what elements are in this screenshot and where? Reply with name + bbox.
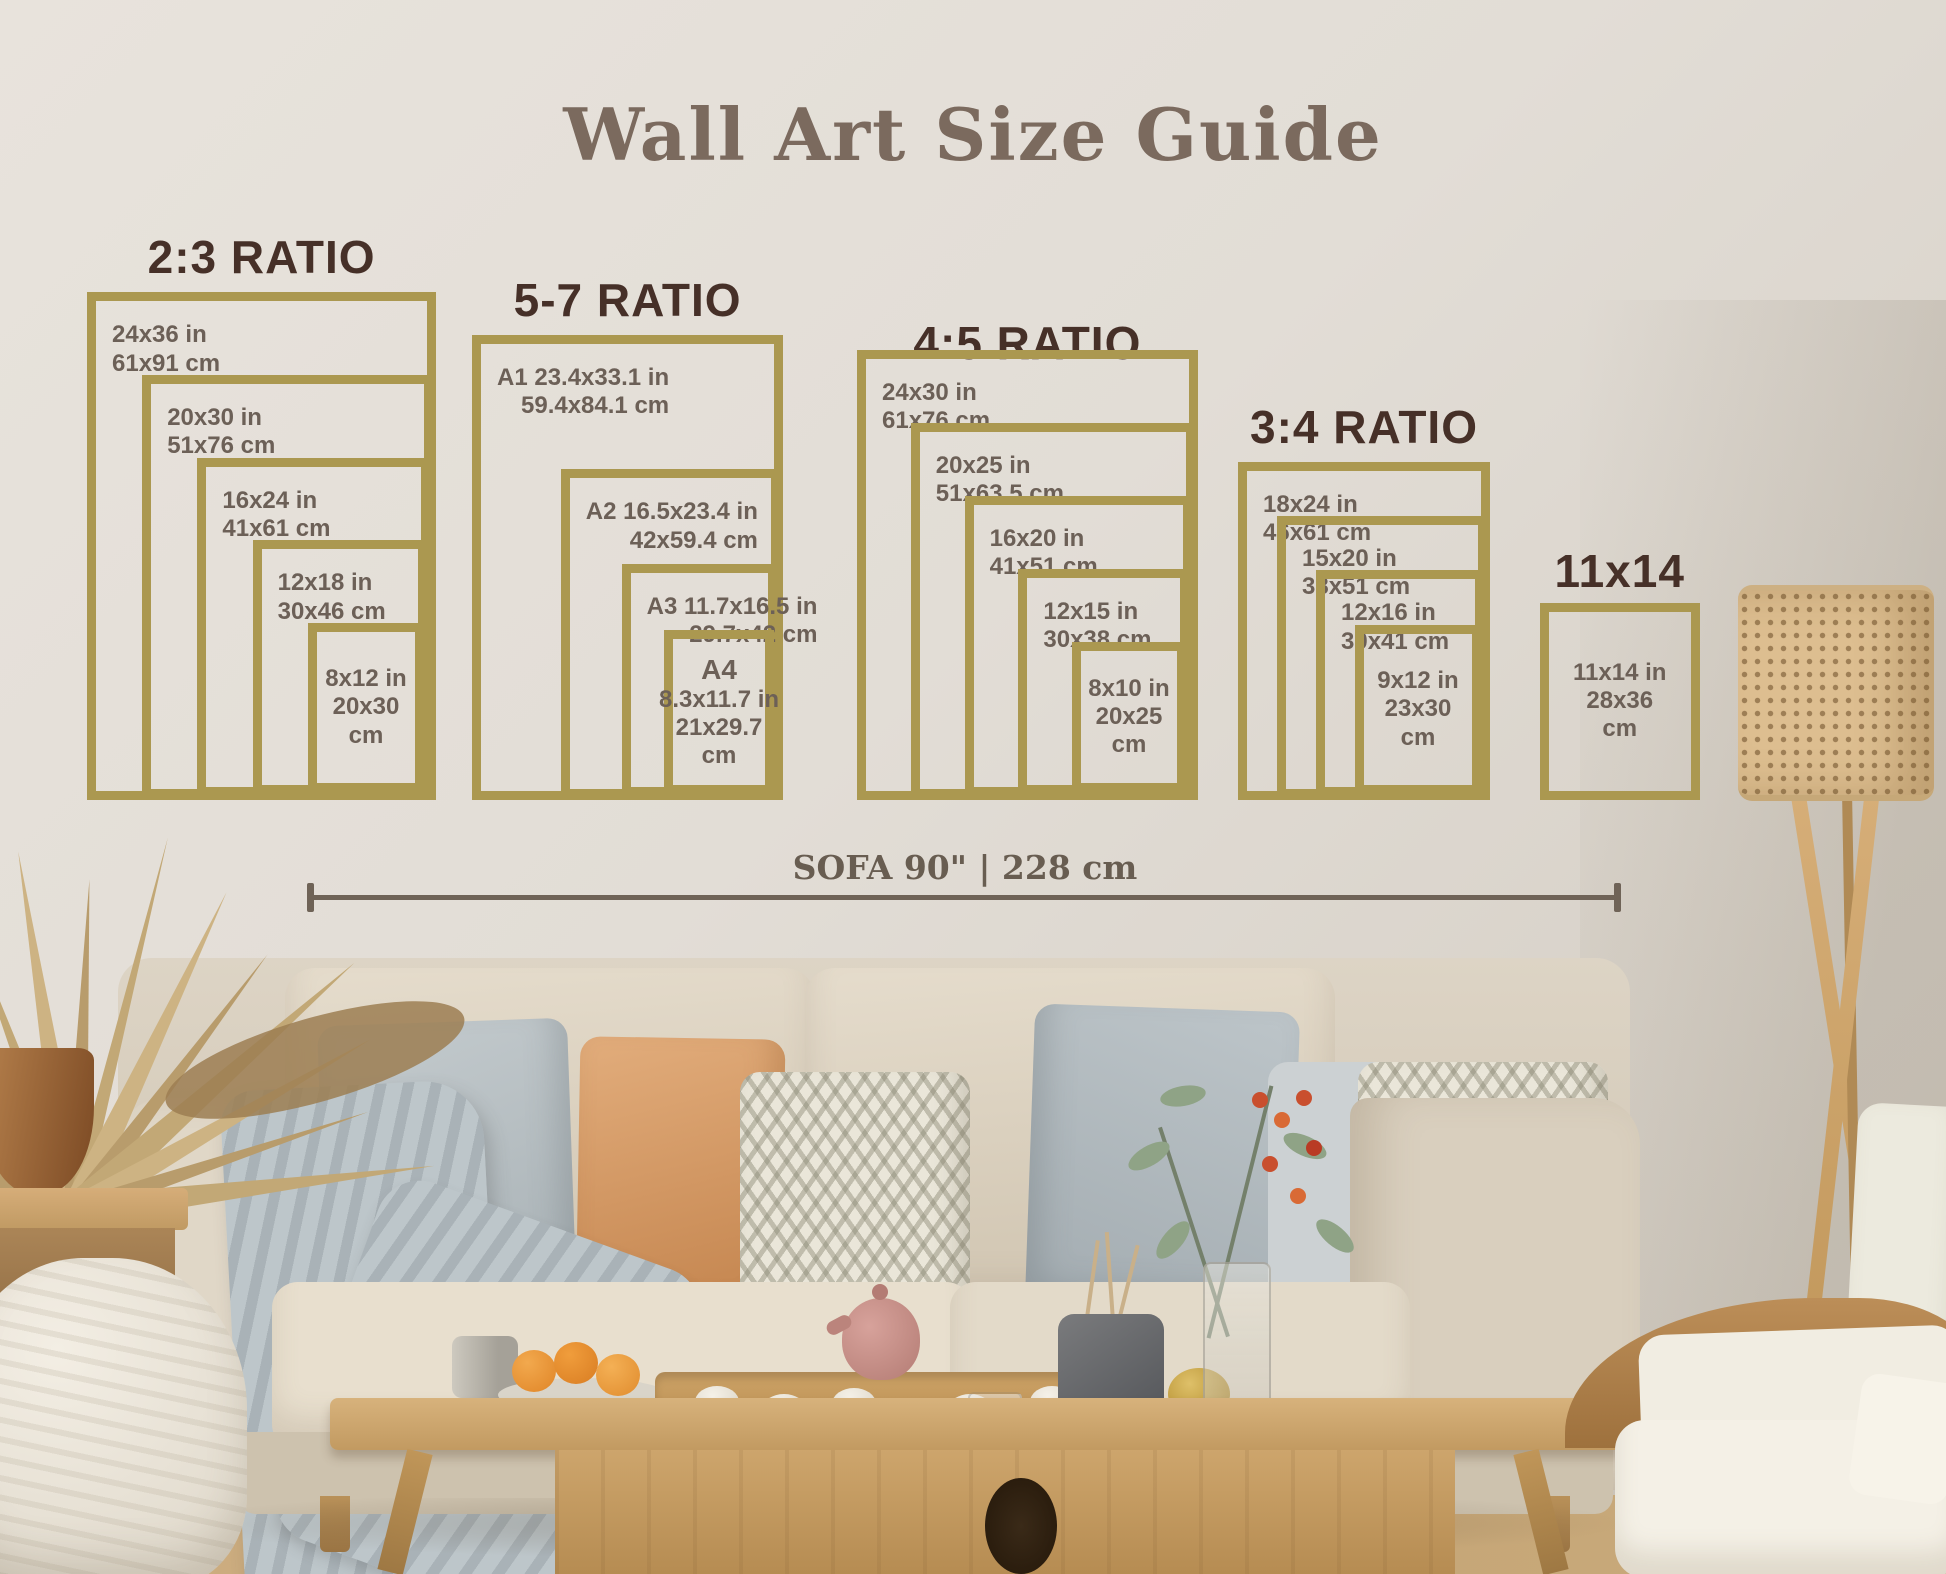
- coffee-table-handle-hole: [985, 1478, 1057, 1574]
- armchair-pillow: [1847, 1372, 1946, 1507]
- rattan-lamp-shade: [1738, 585, 1934, 801]
- living-room-scene: [0, 0, 1946, 1574]
- ottoman: [0, 1258, 247, 1574]
- teapot: [842, 1298, 920, 1380]
- orange-fruit: [512, 1350, 556, 1392]
- orange-fruit: [596, 1354, 640, 1396]
- berry: [1296, 1090, 1312, 1106]
- berry: [1252, 1092, 1268, 1108]
- teapot-knob: [872, 1284, 888, 1300]
- coffee-table-top: [330, 1398, 1680, 1450]
- berry: [1262, 1156, 1278, 1172]
- orange-fruit: [554, 1342, 598, 1384]
- berry: [1306, 1140, 1322, 1156]
- berry: [1290, 1188, 1306, 1204]
- side-table-top: [0, 1188, 188, 1230]
- wall-art-size-guide-poster: Wall Art Size Guide SOFA 90" | 228 cm 2:…: [0, 0, 1946, 1574]
- berry: [1274, 1112, 1290, 1128]
